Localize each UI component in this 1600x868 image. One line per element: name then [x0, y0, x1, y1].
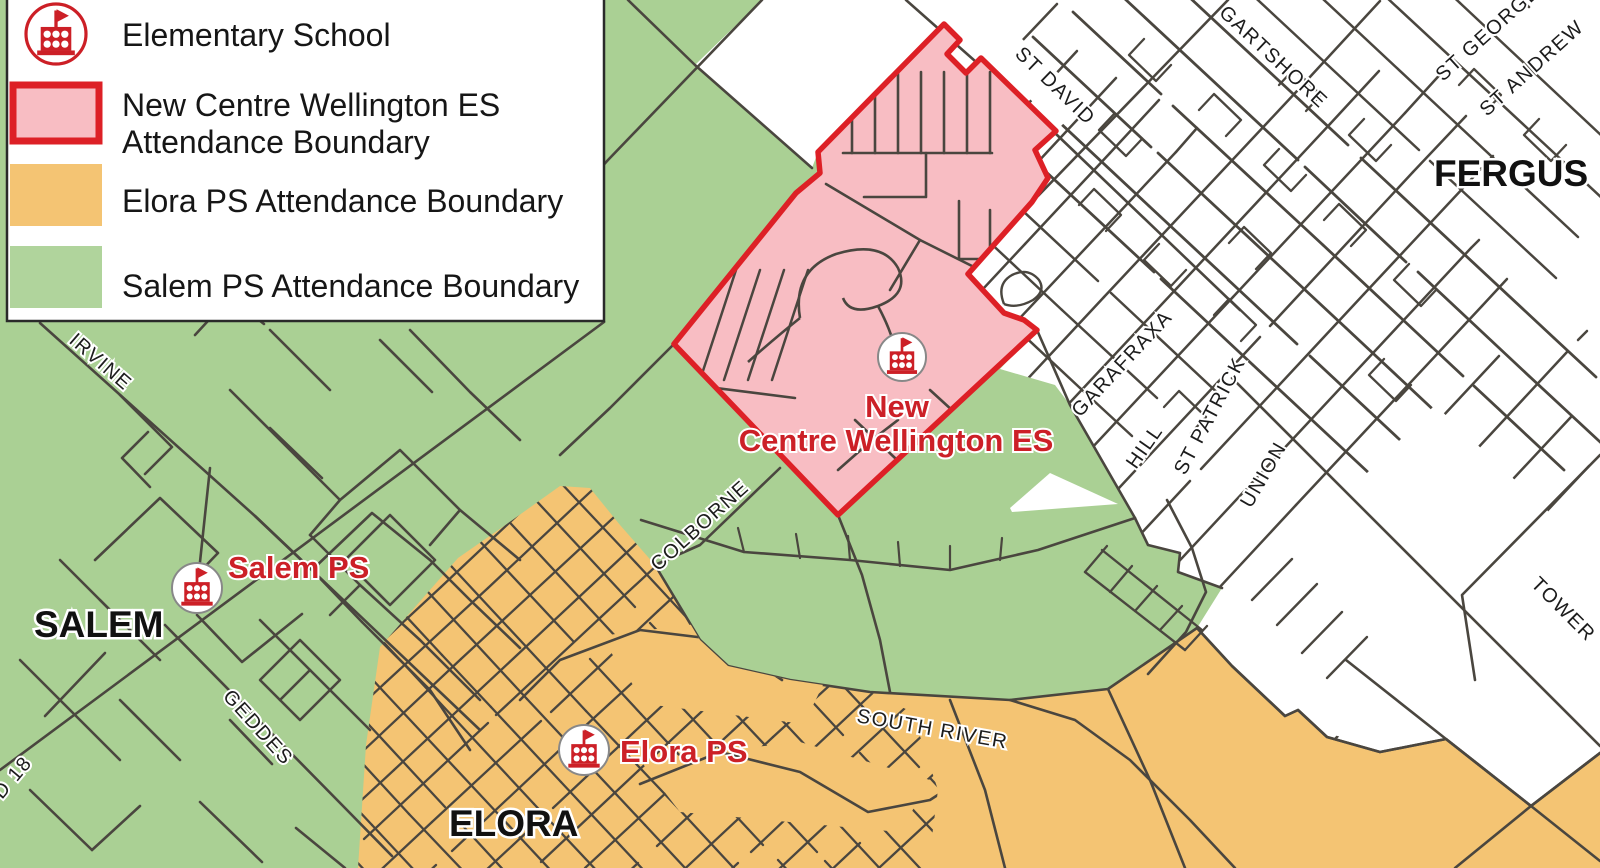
svg-text:Salem PS Attendance Boundary: Salem PS Attendance Boundary: [122, 268, 579, 304]
svg-text:Elora PS: Elora PS: [620, 734, 748, 769]
svg-text:Salem PS: Salem PS: [228, 550, 369, 585]
svg-text:Attendance Boundary: Attendance Boundary: [122, 124, 430, 160]
svg-text:Elementary School: Elementary School: [122, 17, 391, 53]
svg-text:New: New: [865, 389, 930, 424]
svg-text:Centre Wellington ES: Centre Wellington ES: [739, 423, 1054, 458]
svg-text:SALEM: SALEM: [34, 604, 164, 645]
svg-text:FERGUS: FERGUS: [1434, 153, 1588, 194]
svg-text:Elora PS Attendance Boundary: Elora PS Attendance Boundary: [122, 183, 563, 219]
svg-text:ELORA: ELORA: [449, 803, 579, 844]
svg-text:New Centre Wellington ES: New Centre Wellington ES: [122, 87, 500, 123]
